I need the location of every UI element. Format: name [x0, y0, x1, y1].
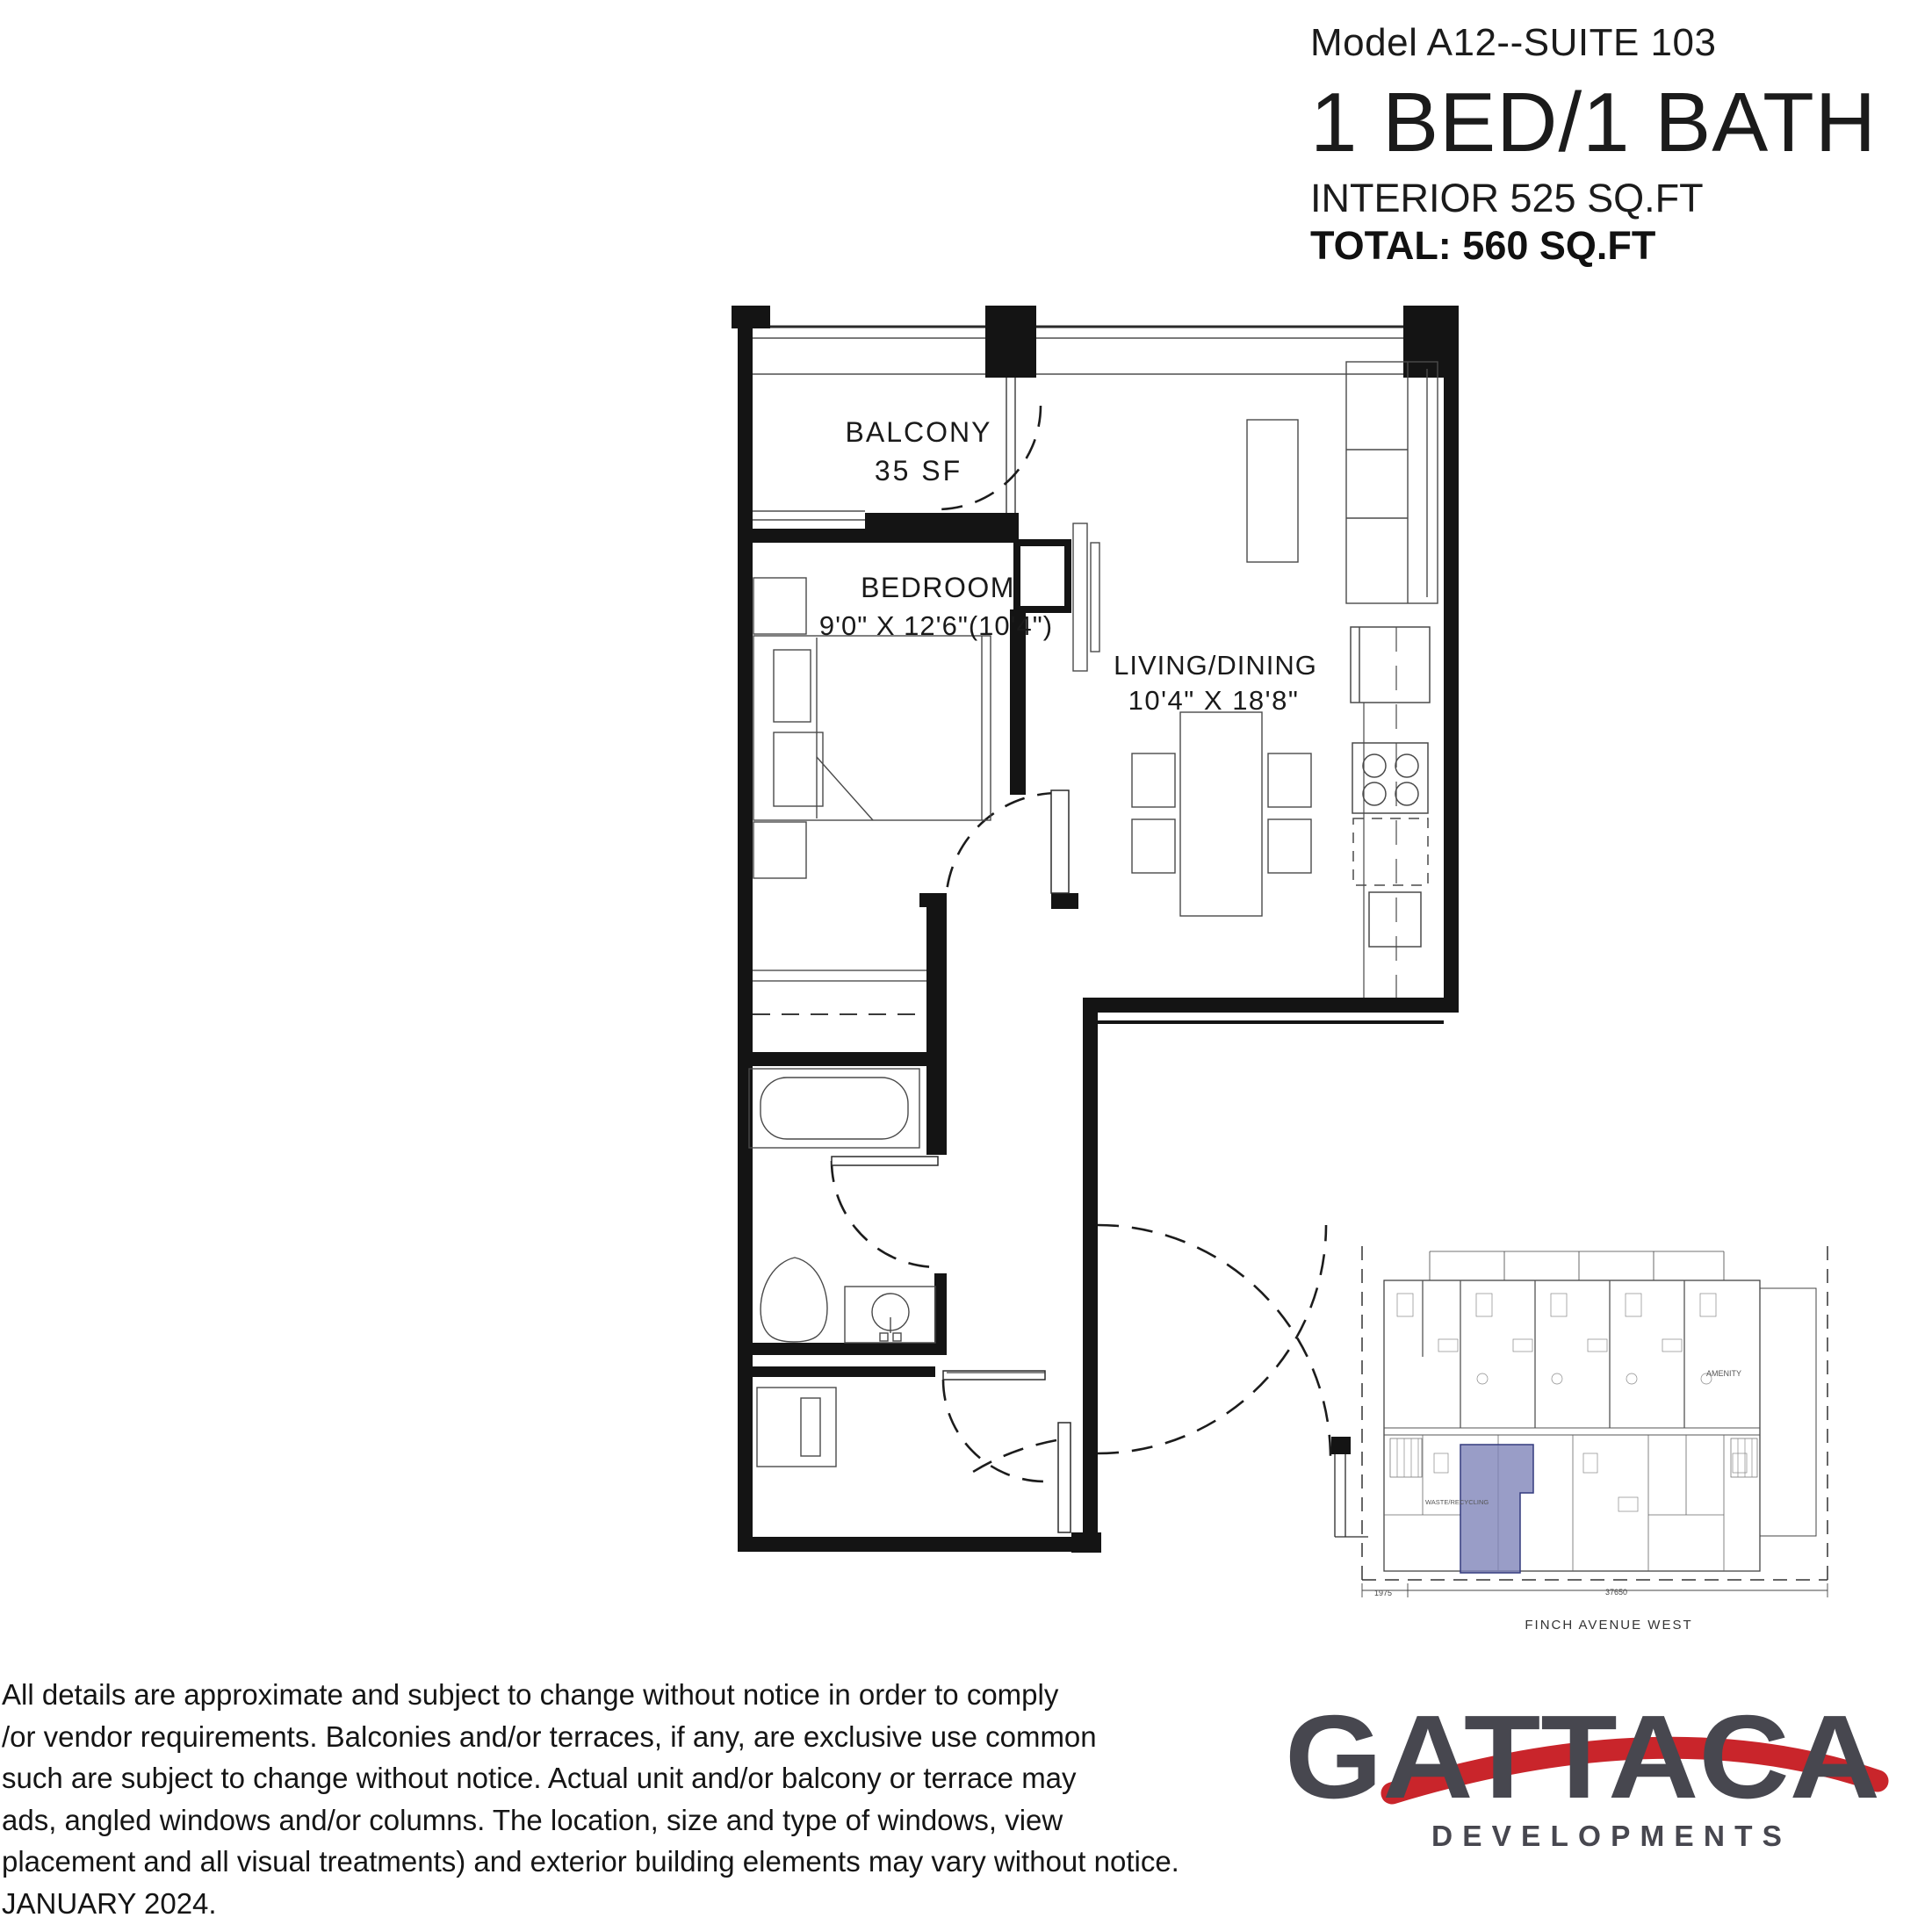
burner-1	[1363, 754, 1386, 777]
wall-stub-cap	[1331, 1437, 1351, 1454]
living-dims-label: 10'4" X 18'8"	[1128, 685, 1300, 716]
keyplan-building	[1384, 1251, 1816, 1571]
wall-balcony-bedroom	[865, 513, 1019, 543]
dining-chair-2	[1132, 819, 1175, 873]
vanity	[845, 1287, 935, 1343]
floor-plan: BALCONY 35 SF BEDROOM 9'0" X 12'6"(10'4"…	[732, 306, 1459, 1553]
bedroom-label: BEDROOM	[861, 572, 1015, 603]
living-label: LIVING/DINING	[1114, 650, 1317, 681]
nightstand-1	[753, 578, 806, 634]
column-top-right	[1403, 306, 1459, 378]
washer-dryer	[757, 1388, 836, 1467]
dining-chair-4	[1268, 819, 1311, 873]
disclaimer-line: placement and all visual treatments) and…	[2, 1841, 1284, 1883]
faucet	[880, 1333, 888, 1341]
wall-bathroom-bottom	[748, 1343, 947, 1355]
wall-right	[1444, 373, 1459, 1013]
logo: GATTACA DEVELOPMENTS	[1285, 1690, 1880, 1852]
closet-door-swing-arc	[943, 1380, 1045, 1481]
toilet	[761, 1258, 827, 1342]
keyplan-dimension-line	[1362, 1583, 1827, 1597]
entry-door-swing-arc-1	[1098, 1225, 1330, 1458]
keyplan: AMENITY WASTE/RECYCLING 1975 37650 FINCH…	[1362, 1246, 1827, 1633]
keyplan-dim-width: 37650	[1605, 1588, 1627, 1597]
nightstand-2	[753, 822, 806, 878]
disclaimer-line: /or vendor requirements. Balconies and/o…	[2, 1716, 1284, 1758]
sofa	[1346, 362, 1438, 603]
plan-drawing: BALCONY 35 SF BEDROOM 9'0" X 12'6"(10'4"…	[0, 0, 1932, 1932]
keyplan-dim-left: 1975	[1374, 1589, 1392, 1597]
tv-screen	[1091, 543, 1099, 652]
pillow-1	[774, 650, 811, 722]
fridge	[1351, 627, 1430, 703]
bedroom-door-post	[1051, 893, 1078, 909]
wall-corridor-foot	[1071, 1532, 1101, 1553]
keyplan-property-line	[1362, 1246, 1827, 1580]
kitchen-sink	[1369, 892, 1421, 947]
wall-corridor	[1083, 998, 1098, 1537]
living-furniture	[1073, 362, 1438, 916]
burner-2	[1395, 754, 1418, 777]
wall-left	[738, 309, 753, 1552]
kitchen	[1351, 627, 1430, 998]
logo-tagline: DEVELOPMENTS	[1431, 1820, 1791, 1852]
disclaimer-line: such are subject to change without notic…	[2, 1757, 1284, 1799]
tv-unit	[1073, 523, 1087, 671]
wall-bathroom-top	[748, 1052, 947, 1066]
bedroom-dims-label: 9'0" X 12'6"(10'4")	[819, 610, 1053, 641]
keyplan-street-label: FINCH AVENUE WEST	[1525, 1618, 1692, 1633]
keyplan-highlight	[1460, 1445, 1533, 1573]
floorplan-sheet: Model A12--SUITE 103 1 BED/1 BATH INTERI…	[0, 0, 1932, 1932]
burner-4	[1395, 782, 1418, 805]
dining-chair-1	[1132, 753, 1175, 807]
bathtub-inner	[761, 1078, 908, 1139]
wall-laundry-top	[748, 1366, 935, 1377]
logo-wordmark: GATTACA	[1285, 1690, 1880, 1823]
balcony-area-label: 35 SF	[875, 455, 962, 487]
bed	[753, 636, 991, 820]
washer-dryer-inner	[801, 1398, 820, 1456]
entry-door-swing-arc-2	[1098, 1225, 1326, 1453]
laundry-closet	[757, 1388, 836, 1467]
entry-door-leaf	[1058, 1423, 1071, 1532]
dining-chair-3	[1268, 753, 1311, 807]
kitchen-island	[1247, 420, 1298, 562]
disclaimer-line: ads, angled windows and/or columns. The …	[2, 1799, 1284, 1842]
dining-table	[1180, 712, 1262, 916]
wall-bottom	[738, 1537, 1073, 1552]
keyplan-amenity-label: AMENITY	[1706, 1369, 1741, 1378]
column-balcony-door	[985, 306, 1036, 378]
bathroom-door-leaf	[832, 1157, 938, 1165]
entry-door-swing-arc-3	[973, 1440, 1056, 1472]
shaft-box	[1017, 543, 1068, 609]
balcony-label: BALCONY	[846, 416, 992, 448]
disclaimer-line: JANUARY 2024.	[2, 1883, 1284, 1925]
corridor-stub-wall	[1335, 1454, 1368, 1537]
bedroom-door-swing-arc	[947, 793, 1058, 891]
bedroom-closet	[753, 970, 926, 1014]
burner-3	[1363, 782, 1386, 805]
blanket-fold	[817, 757, 873, 820]
pillow-2	[774, 732, 823, 806]
keyplan-waste-label: WASTE/RECYCLING	[1425, 1498, 1489, 1506]
bedroom-door-leaf	[1051, 790, 1069, 893]
disclaimer: All details are approximate and subject …	[2, 1674, 1284, 1924]
disclaimer-line: All details are approximate and subject …	[2, 1674, 1284, 1716]
bathroom-door-swing-arc	[832, 1161, 938, 1267]
wall-hall-upper	[926, 893, 947, 1155]
dishwasher	[1353, 818, 1428, 885]
wall-hall-lower	[934, 1273, 947, 1353]
wall-living-bottom	[1083, 998, 1459, 1013]
keyplan-unit-details	[1390, 1294, 1757, 1511]
walls	[732, 306, 1459, 1553]
